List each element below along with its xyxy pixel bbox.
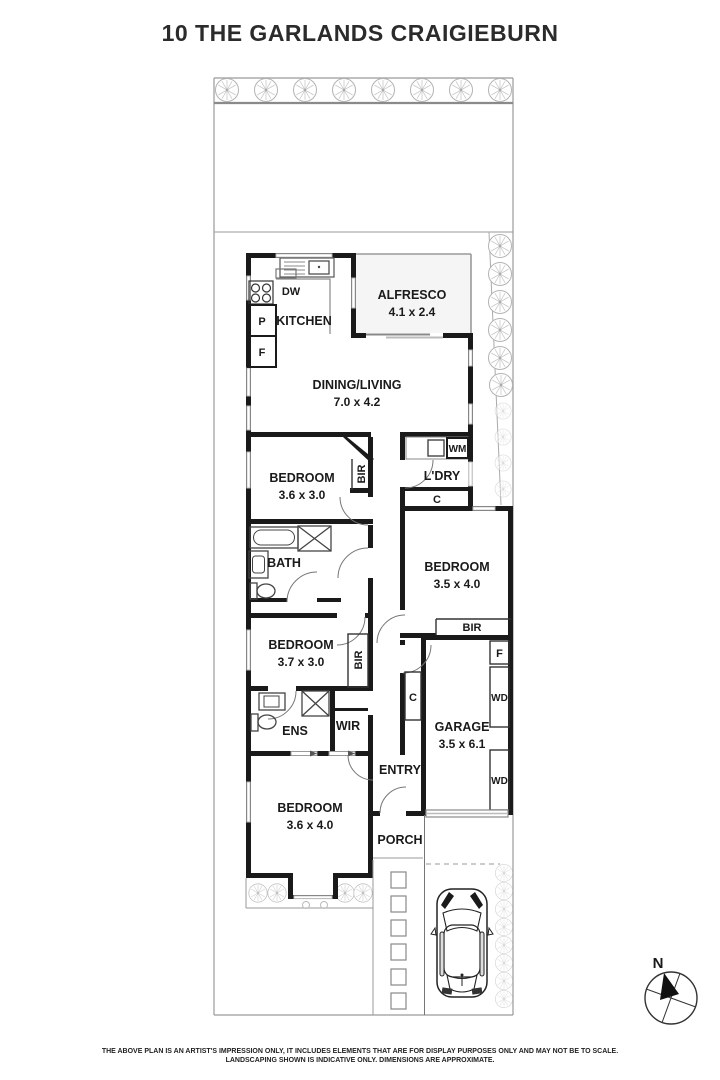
rear-trees (216, 79, 512, 102)
bedroom4-dims: 3.6 x 4.0 (287, 818, 334, 832)
bedroom4-label: BEDROOM (277, 801, 342, 815)
disclaimer: THE ABOVE PLAN IS AN ARTIST'S IMPRESSION… (0, 1047, 720, 1065)
entry-label: ENTRY (379, 763, 422, 777)
bedroom3-label: BEDROOM (268, 638, 333, 652)
bath-label: BATH (267, 556, 301, 570)
disclaimer-line2: LANDSCAPING SHOWN IS INDICATIVE ONLY. DI… (0, 1056, 720, 1065)
kitchen-label: KITCHEN (276, 314, 332, 328)
bedroom2-dims: 3.5 x 4.0 (434, 577, 481, 591)
front-shrubs (249, 884, 372, 902)
stepping-stones (391, 872, 406, 1009)
fridge-kitchen-label: F (259, 347, 266, 359)
ens-toilet-icon (251, 714, 276, 731)
bedroom1-dims: 3.6 x 3.0 (279, 488, 326, 502)
bir1-label: BIR (356, 464, 368, 483)
shower-icon (298, 526, 331, 551)
ens-label: ENS (282, 724, 308, 738)
garage-door (426, 810, 508, 817)
laundry-label: L'DRY (424, 469, 461, 483)
compass-needle (660, 973, 679, 1000)
side-trees (489, 235, 513, 498)
vanity-icon (249, 551, 268, 578)
floorplan-page: 10 THE GARLANDS CRAIGIEBURN (0, 0, 720, 1080)
wd-upper-label: WD (491, 693, 508, 704)
garage-label: GARAGE (435, 720, 490, 734)
washing-machine-label: WM (449, 444, 467, 455)
stacker-door (366, 335, 443, 338)
linen-label: C (433, 494, 441, 506)
wir-label: WIR (336, 719, 360, 733)
dining-label: DINING/LIVING (313, 378, 402, 392)
wd-lower-label: WD (491, 776, 508, 787)
compass-north-label: N (653, 955, 664, 972)
dishwasher-label: DW (282, 286, 301, 298)
alfresco-dims: 4.1 x 2.4 (389, 305, 436, 319)
pantry-label: P (258, 316, 265, 328)
porch-label: PORCH (377, 833, 422, 847)
ens-vanity-icon (259, 693, 285, 710)
car-icon (431, 889, 493, 997)
garage-dims: 3.5 x 6.1 (439, 737, 486, 751)
cooktop-icon (249, 281, 273, 304)
floorplan-drawing: N ALFRESCO 4.1 x 2.4 DINING/LIVING 7.0 x… (0, 0, 720, 1080)
alfresco-label: ALFRESCO (378, 288, 447, 302)
ens-shower-icon (302, 691, 329, 716)
driveway-shrubs (495, 864, 512, 1007)
bir3-label: BIR (353, 650, 365, 669)
disclaimer-line1: THE ABOVE PLAN IS AN ARTIST'S IMPRESSION… (0, 1047, 720, 1056)
room-labels: ALFRESCO 4.1 x 2.4 DINING/LIVING 7.0 x 4… (267, 288, 490, 847)
bedroom3-dims: 3.7 x 3.0 (278, 655, 325, 669)
toilet-icon (250, 583, 275, 599)
dining-dims: 7.0 x 4.2 (334, 395, 381, 409)
fridge-garage-label: F (496, 648, 503, 660)
bir2-label: BIR (463, 622, 482, 634)
bedroom2-label: BEDROOM (424, 560, 489, 574)
hall-cupboard-label: C (409, 692, 417, 704)
compass: N (645, 955, 697, 1024)
bedroom1-label: BEDROOM (269, 471, 334, 485)
